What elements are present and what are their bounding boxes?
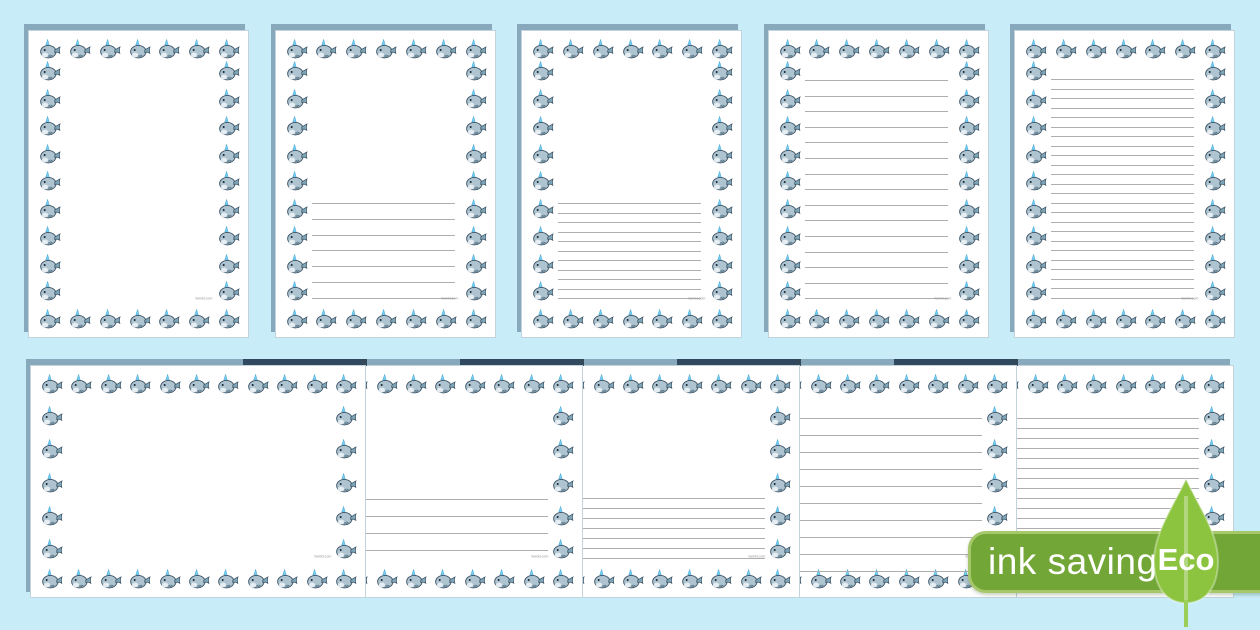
twinkl-watermark: twinkl.com <box>748 555 765 559</box>
writing-line <box>284 550 548 551</box>
narwhal-icon <box>69 309 91 329</box>
narwhal-icon <box>909 539 931 559</box>
narwhal-icon <box>41 473 63 493</box>
narwhal-icon <box>218 144 240 164</box>
narwhal-icon <box>129 39 151 59</box>
narwhal-icon <box>475 473 497 493</box>
narwhal-icon <box>622 39 644 59</box>
narwhal-icon <box>1174 374 1196 394</box>
narwhal-icon <box>692 539 714 559</box>
narwhal-icon <box>868 39 890 59</box>
narwhal-icon <box>779 254 801 274</box>
writing-line <box>805 267 948 268</box>
narwhal-icon <box>622 569 644 589</box>
writing-line <box>1051 212 1194 213</box>
narwhal-icon <box>593 374 615 394</box>
narwhal-icon <box>1025 61 1047 81</box>
narwhal-icon <box>465 281 487 301</box>
writing-line <box>312 282 455 283</box>
narwhal-icon <box>651 309 673 329</box>
narwhal-icon <box>711 116 733 136</box>
narwhal-icon <box>1204 39 1226 59</box>
narwhal-icon <box>375 39 397 59</box>
narwhal-icon <box>808 309 830 329</box>
writing-line <box>501 518 765 519</box>
narwhal-icon <box>532 226 554 246</box>
writing-line <box>805 127 948 128</box>
narwhal-icon <box>1204 61 1226 81</box>
writing-line <box>718 452 982 453</box>
writing-line <box>558 251 701 252</box>
writing-line <box>805 111 948 112</box>
narwhal-icon <box>69 39 91 59</box>
narwhal-icon <box>1204 199 1226 219</box>
narwhal-icon <box>622 309 644 329</box>
narwhal-icon <box>523 374 545 394</box>
narwhal-icon <box>692 439 714 459</box>
narwhal-icon <box>532 309 554 329</box>
narwhal-icon <box>335 374 357 394</box>
writing-line <box>312 266 455 267</box>
narwhal-icon <box>217 569 239 589</box>
narwhal-icon <box>1144 309 1166 329</box>
narwhal-icon <box>41 539 63 559</box>
writing-line <box>935 468 1199 469</box>
narwhal-icon <box>751 569 773 589</box>
narwhal-icon <box>986 473 1008 493</box>
narwhal-icon <box>286 144 308 164</box>
narwhal-icon <box>868 309 890 329</box>
narwhal-icon <box>100 374 122 394</box>
narwhal-icon <box>1085 374 1107 394</box>
narwhal-icon <box>129 569 151 589</box>
narwhal-icon <box>475 406 497 426</box>
narwhal-icon <box>346 374 368 394</box>
writing-line <box>558 298 701 299</box>
narwhal-icon <box>475 539 497 559</box>
narwhal-icon <box>286 39 308 59</box>
page-portrait-half-page-narrow-lines: twinkl.com <box>521 30 742 338</box>
narwhal-icon <box>711 309 733 329</box>
narwhal-icon <box>39 61 61 81</box>
narwhal-icon <box>99 39 121 59</box>
narwhal-icon <box>1025 254 1047 274</box>
narwhal-icon <box>898 374 920 394</box>
writing-line <box>501 558 765 559</box>
writing-line <box>1051 165 1194 166</box>
narwhal-icon <box>692 406 714 426</box>
narwhal-icon <box>534 569 556 589</box>
narwhal-icon <box>681 309 703 329</box>
narwhal-icon <box>692 473 714 493</box>
narwhal-icon <box>779 281 801 301</box>
narwhal-icon <box>710 569 732 589</box>
narwhal-icon <box>1204 89 1226 109</box>
narwhal-icon <box>345 309 367 329</box>
narwhal-icon <box>1203 374 1225 394</box>
twinkl-watermark: twinkl.com <box>442 297 459 301</box>
narwhal-icon <box>286 254 308 274</box>
writing-line <box>1051 184 1194 185</box>
narwhal-icon <box>562 309 584 329</box>
narwhal-icon <box>218 309 240 329</box>
narwhal-icon <box>405 309 427 329</box>
writing-line <box>1051 89 1194 90</box>
writing-line <box>558 270 701 271</box>
narwhal-icon <box>39 39 61 59</box>
narwhal-icon <box>158 309 180 329</box>
narwhal-icon <box>769 506 791 526</box>
writing-line <box>805 252 948 253</box>
narwhal-icon <box>504 374 526 394</box>
narwhal-icon <box>958 226 980 246</box>
narwhal-icon <box>335 506 357 526</box>
writing-line <box>805 96 948 97</box>
narwhal-icon <box>909 439 931 459</box>
narwhal-icon <box>39 171 61 191</box>
narwhal-icon <box>898 39 920 59</box>
narwhal-icon <box>958 254 980 274</box>
narwhal-icon <box>376 569 398 589</box>
narwhal-icon <box>1085 309 1107 329</box>
narwhal-icon <box>593 569 615 589</box>
twinkl-watermark: twinkl.com <box>314 555 331 559</box>
narwhal-icon <box>532 61 554 81</box>
narwhal-icon <box>1025 171 1047 191</box>
narwhal-icon <box>780 569 802 589</box>
narwhal-icon <box>838 39 860 59</box>
narwhal-icon <box>405 39 427 59</box>
narwhal-icon <box>839 569 861 589</box>
narwhal-icon <box>434 374 456 394</box>
page-portrait-blank: twinkl.com <box>28 30 249 338</box>
narwhal-icon <box>711 199 733 219</box>
narwhal-icon <box>958 39 980 59</box>
narwhal-icon <box>958 171 980 191</box>
narwhal-icon <box>39 89 61 109</box>
narwhal-icon <box>129 309 151 329</box>
narwhal-icon <box>1203 406 1225 426</box>
writing-line <box>805 142 948 143</box>
narwhal-icon <box>681 39 703 59</box>
writing-line <box>718 520 982 521</box>
narwhal-icon <box>779 116 801 136</box>
narwhal-icon <box>39 309 61 329</box>
narwhal-icon <box>159 374 181 394</box>
writing-line <box>312 250 455 251</box>
narwhal-icon <box>651 39 673 59</box>
narwhal-icon <box>692 374 714 394</box>
narwhal-icon <box>218 226 240 246</box>
narwhal-icon <box>1025 89 1047 109</box>
narwhal-icon <box>769 539 791 559</box>
twinkl-watermark: twinkl.com <box>1181 297 1198 301</box>
writing-line <box>558 260 701 261</box>
narwhal-icon <box>711 281 733 301</box>
narwhal-icon <box>218 116 240 136</box>
narwhal-icon <box>41 374 63 394</box>
writing-line <box>312 219 455 220</box>
narwhal-icon <box>751 374 773 394</box>
narwhal-icon <box>376 374 398 394</box>
narwhal-icon <box>997 374 1019 394</box>
narwhal-icon <box>909 569 931 589</box>
narwhal-icon <box>532 254 554 274</box>
narwhal-icon <box>532 89 554 109</box>
narwhal-icon <box>405 374 427 394</box>
narwhal-icon <box>651 569 673 589</box>
writing-line <box>805 236 948 237</box>
narwhal-icon <box>287 569 309 589</box>
narwhal-icon <box>563 569 585 589</box>
writing-line <box>1051 231 1194 232</box>
narwhal-icon <box>258 539 280 559</box>
writing-line <box>312 203 455 204</box>
narwhal-icon <box>306 569 328 589</box>
twinkl-watermark: twinkl.com <box>195 297 212 301</box>
narwhal-icon <box>710 374 732 394</box>
narwhal-icon <box>1115 309 1137 329</box>
narwhal-icon <box>218 199 240 219</box>
narwhal-icon <box>41 406 63 426</box>
narwhal-icon <box>681 374 703 394</box>
narwhal-icon <box>465 116 487 136</box>
writing-line <box>805 189 948 190</box>
writing-line <box>558 232 701 233</box>
narwhal-icon <box>592 39 614 59</box>
narwhal-icon <box>317 569 339 589</box>
narwhal-icon <box>651 374 673 394</box>
page-landscape-full-page-wide-lines: twinkl.com <box>681 365 1017 598</box>
writing-line <box>1051 279 1194 280</box>
narwhal-icon <box>286 61 308 81</box>
writing-line <box>805 158 948 159</box>
narwhal-icon <box>41 439 63 459</box>
twinkl-watermark: twinkl.com <box>688 297 705 301</box>
narwhal-icon <box>711 144 733 164</box>
writing-line <box>718 486 982 487</box>
writing-line <box>805 283 948 284</box>
narwhal-icon <box>435 39 457 59</box>
writing-line <box>935 448 1199 449</box>
narwhal-icon <box>958 116 980 136</box>
narwhal-icon <box>1204 226 1226 246</box>
narwhal-icon <box>927 569 949 589</box>
narwhal-icon <box>258 406 280 426</box>
page-landscape-half-page-wide-lines: twinkl.com <box>247 365 583 598</box>
narwhal-icon <box>247 374 269 394</box>
narwhal-icon <box>769 569 791 589</box>
narwhal-icon <box>968 374 990 394</box>
narwhal-icon <box>1204 116 1226 136</box>
narwhal-icon <box>465 89 487 109</box>
narwhal-icon <box>475 569 497 589</box>
narwhal-icon <box>475 374 497 394</box>
narwhal-icon <box>465 309 487 329</box>
narwhal-icon <box>681 569 703 589</box>
narwhal-icon <box>552 406 574 426</box>
narwhal-icon <box>39 226 61 246</box>
narwhal-icon <box>41 506 63 526</box>
writing-line <box>558 241 701 242</box>
writing-line <box>805 174 948 175</box>
page-portrait-half-page-wide-lines: twinkl.com <box>275 30 496 338</box>
narwhal-icon <box>1056 374 1078 394</box>
writing-line <box>284 533 548 534</box>
narwhal-icon <box>306 374 328 394</box>
narwhal-icon <box>335 569 357 589</box>
writing-line <box>1051 298 1194 299</box>
eco-label: Eco <box>1146 542 1226 578</box>
narwhal-icon <box>898 309 920 329</box>
writing-line <box>1051 127 1194 128</box>
narwhal-icon <box>465 61 487 81</box>
narwhal-icon <box>909 473 931 493</box>
narwhal-icon <box>1174 309 1196 329</box>
narwhal-icon <box>317 374 339 394</box>
narwhal-icon <box>1055 309 1077 329</box>
narwhal-icon <box>1115 374 1137 394</box>
narwhal-icon <box>258 473 280 493</box>
narwhal-icon <box>286 89 308 109</box>
writing-line <box>558 289 701 290</box>
narwhal-icon <box>769 374 791 394</box>
narwhal-icon <box>740 569 762 589</box>
narwhal-icon <box>218 61 240 81</box>
writing-line <box>1051 136 1194 137</box>
narwhal-icon <box>465 254 487 274</box>
writing-line <box>718 435 982 436</box>
narwhal-icon <box>986 406 1008 426</box>
writing-line <box>558 222 701 223</box>
narwhal-icon <box>532 171 554 191</box>
narwhal-icon <box>958 199 980 219</box>
writing-line <box>1051 250 1194 251</box>
writing-line <box>1051 155 1194 156</box>
narwhal-icon <box>779 39 801 59</box>
narwhal-icon <box>465 144 487 164</box>
narwhal-icon <box>345 39 367 59</box>
narwhal-icon <box>808 39 830 59</box>
narwhal-icon <box>779 309 801 329</box>
narwhal-icon <box>41 569 63 589</box>
writing-line <box>718 554 982 555</box>
writing-line <box>1051 203 1194 204</box>
narwhal-icon <box>927 374 949 394</box>
narwhal-icon <box>552 539 574 559</box>
narwhal-icon <box>721 374 743 394</box>
narwhal-icon <box>552 473 574 493</box>
writing-line <box>805 298 948 299</box>
writing-line <box>805 220 948 221</box>
narwhal-icon <box>286 281 308 301</box>
narwhal-icon <box>711 61 733 81</box>
narwhal-icon <box>534 374 556 394</box>
narwhal-icon <box>532 144 554 164</box>
narwhal-icon <box>335 439 357 459</box>
narwhal-icon <box>779 226 801 246</box>
narwhal-icon <box>346 569 368 589</box>
narwhal-icon <box>532 199 554 219</box>
writing-line <box>1051 174 1194 175</box>
narwhal-icon <box>563 374 585 394</box>
narwhal-icon <box>958 309 980 329</box>
writing-line <box>935 458 1199 459</box>
writing-line <box>558 203 701 204</box>
narwhal-icon <box>909 406 931 426</box>
narwhal-icon <box>523 569 545 589</box>
page-portrait-full-page-narrow-lines: twinkl.com <box>1014 30 1235 338</box>
narwhal-icon <box>779 89 801 109</box>
narwhal-icon <box>286 171 308 191</box>
page-landscape-half-page-narrow-lines: twinkl.com <box>464 365 800 598</box>
narwhal-icon <box>217 374 239 394</box>
narwhal-icon <box>692 569 714 589</box>
narwhal-icon <box>1115 39 1137 59</box>
narwhal-icon <box>957 374 979 394</box>
narwhal-icon <box>958 281 980 301</box>
narwhal-icon <box>1204 171 1226 191</box>
writing-line <box>718 537 982 538</box>
narwhal-icon <box>1204 309 1226 329</box>
narwhal-icon <box>39 281 61 301</box>
narwhal-icon <box>1025 116 1047 136</box>
narwhal-icon <box>552 569 574 589</box>
narwhal-icon <box>286 226 308 246</box>
narwhal-icon <box>375 309 397 329</box>
writing-line <box>935 438 1199 439</box>
narwhal-icon <box>218 89 240 109</box>
narwhal-icon <box>465 226 487 246</box>
narwhal-icon <box>711 254 733 274</box>
writing-line <box>1051 117 1194 118</box>
narwhal-icon <box>721 569 743 589</box>
narwhal-icon <box>769 406 791 426</box>
narwhal-icon <box>938 374 960 394</box>
narwhal-icon <box>493 374 515 394</box>
narwhal-icon <box>465 171 487 191</box>
narwhal-icon <box>188 569 210 589</box>
writing-line <box>501 508 765 509</box>
narwhal-icon <box>258 569 280 589</box>
narwhal-icon <box>1025 309 1047 329</box>
narwhal-icon <box>335 473 357 493</box>
narwhal-icon <box>592 309 614 329</box>
narwhal-icon <box>218 281 240 301</box>
narwhal-icon <box>188 39 210 59</box>
narwhal-icon <box>276 569 298 589</box>
narwhal-icon <box>552 374 574 394</box>
narwhal-icon <box>39 254 61 274</box>
narwhal-icon <box>315 39 337 59</box>
narwhal-icon <box>464 569 486 589</box>
narwhal-icon <box>1025 226 1047 246</box>
eco-leaf-icon: Eco <box>1146 476 1226 628</box>
page-portrait-full-page-wide-lines: twinkl.com <box>768 30 989 338</box>
writing-line <box>284 499 548 500</box>
narwhal-icon <box>465 39 487 59</box>
narwhal-icon <box>1085 39 1107 59</box>
writing-line <box>1051 108 1194 109</box>
narwhal-icon <box>1204 144 1226 164</box>
narwhal-icon <box>247 569 269 589</box>
writing-line <box>1051 79 1194 80</box>
narwhal-icon <box>335 406 357 426</box>
narwhal-icon <box>1203 439 1225 459</box>
narwhal-icon <box>405 569 427 589</box>
narwhal-icon <box>552 439 574 459</box>
narwhal-icon <box>552 506 574 526</box>
